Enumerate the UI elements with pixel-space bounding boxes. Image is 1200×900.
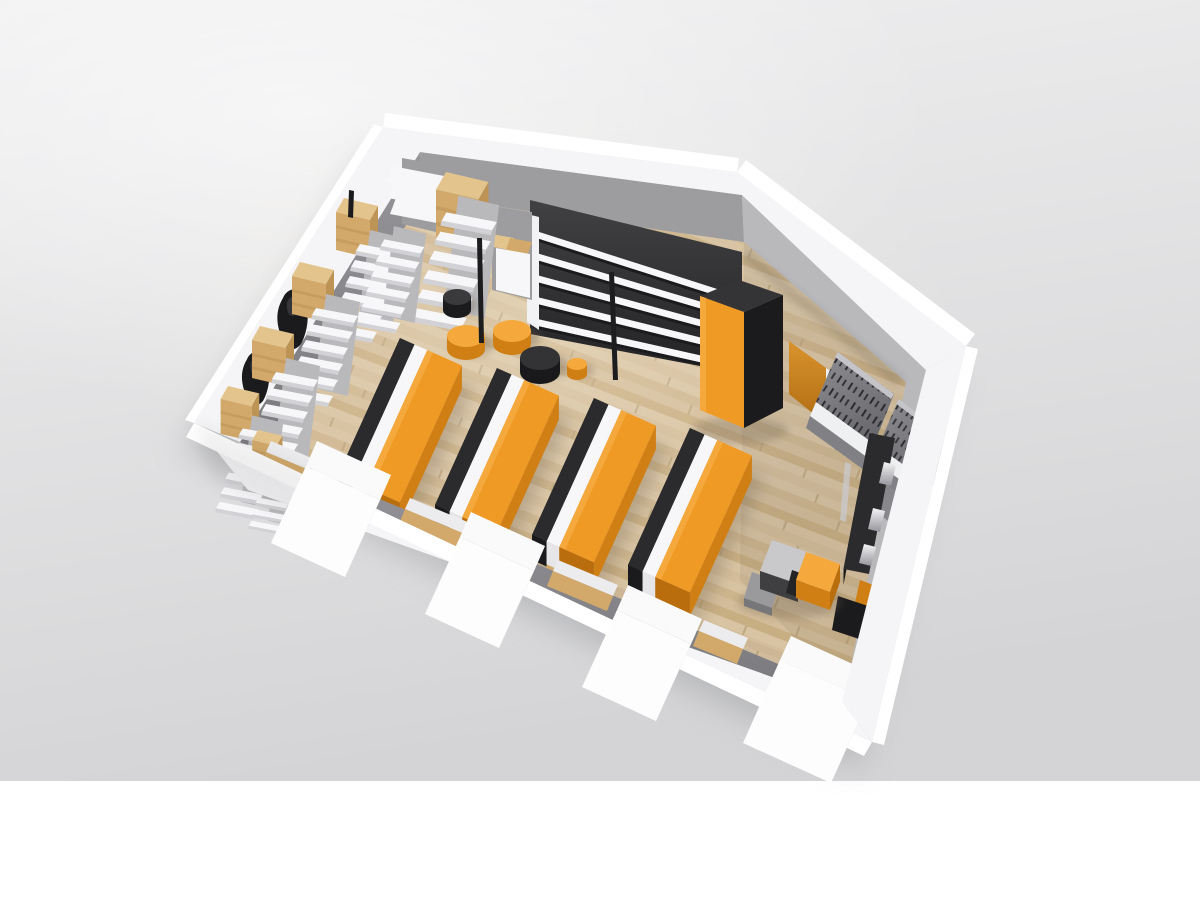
- pouf-orange-small-top: [567, 358, 587, 370]
- store-3d-floorplan: 3D isometric render of a retail store fl…: [0, 0, 1200, 900]
- canvas-margin: [0, 781, 1200, 900]
- cabinet-front-highlight: [700, 296, 706, 412]
- store-render-canvas: 3D isometric render of a retail store fl…: [0, 0, 1200, 900]
- pouf-dark-small-top: [443, 289, 471, 305]
- pouf-orange-top: [493, 320, 531, 342]
- pouf-dark-large-top: [520, 346, 560, 370]
- white-cabinet: [496, 248, 530, 298]
- cabinet-orange-front: [700, 296, 744, 428]
- cabinet-dark-side: [744, 295, 783, 428]
- gondola-signpost: [348, 190, 354, 218]
